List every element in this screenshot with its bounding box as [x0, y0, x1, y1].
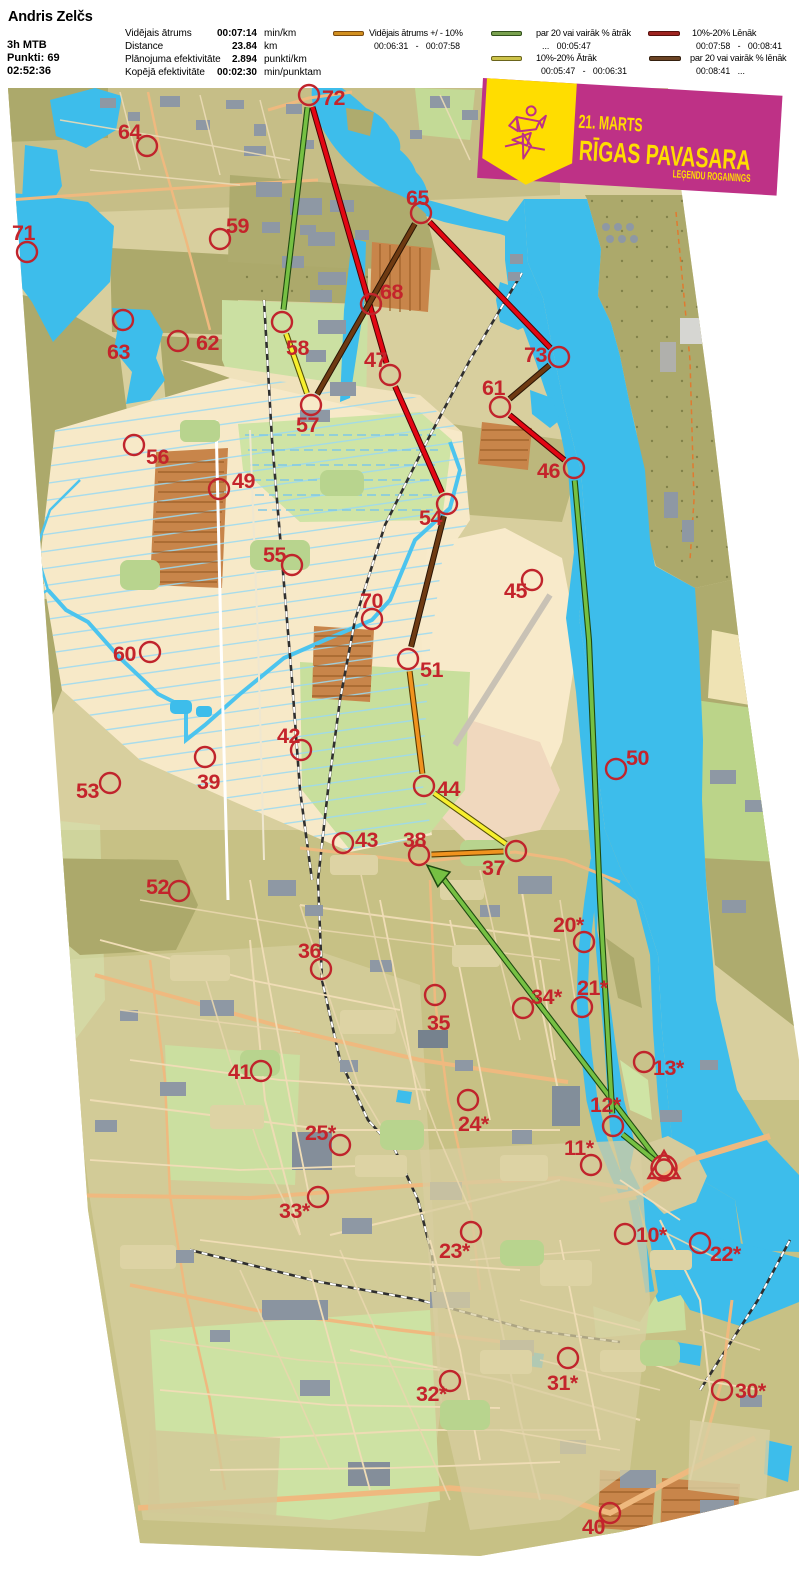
svg-text:37: 37	[482, 856, 505, 880]
svg-text:11*: 11*	[564, 1136, 595, 1160]
svg-text:47: 47	[364, 348, 387, 372]
svg-text:54: 54	[419, 506, 442, 530]
svg-text:71: 71	[12, 221, 35, 245]
svg-text:44: 44	[437, 777, 460, 801]
svg-text:42: 42	[277, 724, 300, 748]
svg-text:22*: 22*	[710, 1242, 742, 1266]
svg-text:50: 50	[626, 746, 649, 770]
svg-text:70: 70	[360, 589, 383, 613]
svg-text:35: 35	[427, 1011, 450, 1035]
svg-text:52: 52	[146, 875, 169, 899]
svg-text:13*: 13*	[653, 1056, 685, 1080]
svg-text:68: 68	[380, 280, 403, 304]
svg-text:49: 49	[232, 469, 255, 493]
svg-text:62: 62	[196, 331, 219, 355]
svg-text:73: 73	[524, 343, 547, 367]
svg-text:59: 59	[226, 214, 249, 238]
svg-text:10*: 10*	[636, 1223, 668, 1247]
svg-text:45: 45	[504, 579, 527, 603]
svg-text:53: 53	[76, 779, 99, 803]
svg-text:36: 36	[298, 939, 321, 963]
svg-text:21. MARTS: 21. MARTS	[578, 112, 643, 137]
svg-text:57: 57	[296, 413, 319, 437]
svg-text:12*: 12*	[590, 1093, 622, 1117]
svg-text:41: 41	[228, 1060, 251, 1084]
svg-text:58: 58	[286, 336, 309, 360]
svg-text:25*: 25*	[305, 1121, 337, 1145]
svg-text:40: 40	[582, 1515, 605, 1539]
svg-text:30*: 30*	[735, 1379, 767, 1403]
svg-text:34*: 34*	[531, 985, 563, 1009]
svg-text:56: 56	[146, 445, 169, 469]
svg-text:46: 46	[537, 459, 560, 483]
svg-text:43: 43	[355, 828, 378, 852]
svg-text:64: 64	[118, 120, 141, 144]
svg-text:55: 55	[263, 543, 286, 567]
svg-text:31*: 31*	[547, 1371, 579, 1395]
svg-text:33*: 33*	[279, 1199, 311, 1223]
svg-text:23*: 23*	[439, 1239, 471, 1263]
svg-text:38: 38	[403, 828, 426, 852]
svg-text:24*: 24*	[458, 1112, 490, 1136]
svg-text:60: 60	[113, 642, 136, 666]
svg-text:63: 63	[107, 340, 130, 364]
svg-text:51: 51	[420, 658, 443, 682]
svg-text:21*: 21*	[577, 976, 609, 1000]
svg-text:72: 72	[322, 86, 345, 110]
svg-text:20*: 20*	[553, 913, 585, 937]
svg-text:65: 65	[406, 186, 429, 210]
svg-text:61: 61	[482, 376, 505, 400]
svg-text:39: 39	[197, 770, 220, 794]
svg-text:32*: 32*	[416, 1382, 448, 1406]
